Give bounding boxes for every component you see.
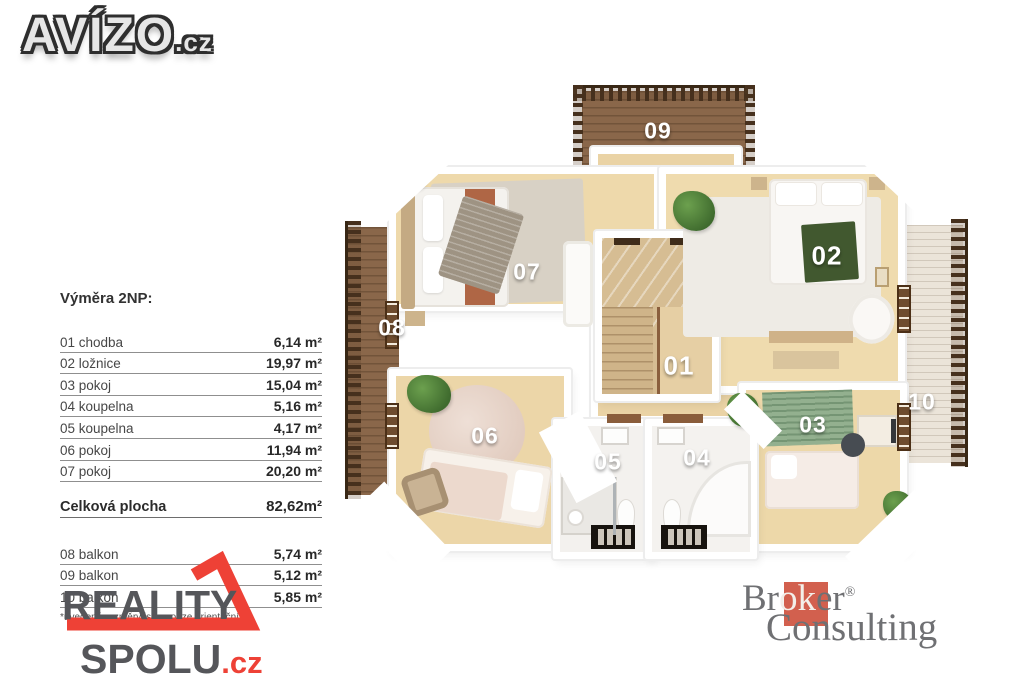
legend-total-row: Celková plocha82,62m²	[60, 494, 322, 518]
total-value: 82,62m²	[266, 498, 322, 515]
row-value: 11,94 m²	[267, 442, 322, 458]
floor-grate	[661, 525, 707, 549]
door-vent	[614, 238, 640, 245]
room-label-09: 09	[644, 118, 672, 145]
monitor	[891, 419, 896, 443]
pillow	[821, 182, 863, 206]
room-label-07: 07	[513, 259, 541, 286]
sink	[657, 427, 685, 445]
room-label-04: 04	[683, 445, 711, 472]
reality-spolu-logo: REALITY SPOLU.cz	[62, 548, 322, 688]
window	[385, 403, 399, 449]
console-table	[769, 331, 853, 343]
shower-glass	[613, 477, 616, 535]
total-label: Celková plocha	[60, 499, 166, 515]
legend-row: 02 ložnice19,97 m²	[60, 353, 322, 375]
room-label-08: 08	[378, 315, 406, 342]
room-label-02: 02	[812, 241, 843, 272]
legend-row: 01 chodba6,14 m²	[60, 331, 322, 353]
pillow	[423, 195, 443, 241]
room-label-03: 03	[799, 412, 827, 439]
door-threshold	[663, 414, 703, 423]
window	[897, 285, 911, 333]
legend-row: 03 pokoj15,04 m²	[60, 374, 322, 396]
couch	[563, 241, 593, 327]
avizo-logo-tld: .cz	[175, 27, 213, 57]
row-label: 02 ložnice	[60, 356, 121, 371]
legend-row: 06 pokoj11,94 m²	[60, 439, 322, 461]
room-label-06: 06	[471, 423, 499, 450]
floor-plan: 01 02 03 04 05 06 07 08 09 10	[345, 85, 970, 575]
avizo-logo: AVÍZO.cz	[22, 12, 213, 60]
pillow	[771, 455, 797, 479]
reality-spolu-word: SPOLU	[80, 636, 221, 682]
reality-spolu-tld: .cz	[221, 645, 262, 680]
row-label: 03 pokoj	[60, 378, 111, 393]
legend-title: Výměra 2NP:	[60, 290, 322, 307]
door-threshold	[607, 414, 641, 423]
legend-row: 07 pokoj20,20 m²	[60, 461, 322, 483]
stool	[567, 509, 584, 526]
room-label-01: 01	[664, 351, 695, 382]
row-label: 06 pokoj	[60, 443, 111, 458]
desk	[773, 351, 839, 369]
row-value: 6,14 m²	[274, 334, 322, 350]
legend-row: 04 koupelna5,16 m²	[60, 396, 322, 418]
row-value: 4,17 m²	[274, 420, 322, 436]
row-label: 05 koupelna	[60, 421, 134, 436]
stair-flight	[602, 307, 653, 394]
nightstand	[751, 177, 767, 190]
broker-line2: Consulting	[766, 608, 937, 647]
room-label-10: 10	[908, 389, 936, 416]
row-label: 04 koupelna	[60, 399, 134, 414]
sink	[601, 427, 629, 445]
balcony-09-railing	[573, 85, 755, 101]
registered-mark: ®	[845, 585, 856, 600]
reality-spolu-line1: REALITY	[62, 582, 237, 629]
row-value: 20,20 m²	[266, 463, 322, 479]
row-value: 19,97 m²	[266, 355, 322, 371]
legend-row: 05 koupelna4,17 m²	[60, 417, 322, 439]
row-label: 01 chodba	[60, 335, 123, 350]
pillow	[775, 182, 817, 206]
nightstand	[405, 311, 425, 326]
row-label: 07 pokoj	[60, 464, 111, 479]
balcony-08-railing	[345, 221, 361, 499]
desk-chair	[841, 433, 865, 457]
balcony-09-railing-left	[573, 85, 583, 169]
balcony-10-railing	[951, 219, 968, 467]
avizo-logo-text: AVÍZO	[22, 9, 175, 62]
balcony-09-railing-right	[745, 85, 755, 169]
reality-spolu-line2: SPOLU.cz	[80, 636, 263, 683]
picture-frame	[875, 267, 889, 287]
row-value: 5,16 m²	[274, 398, 322, 414]
row-value: 15,04 m²	[266, 377, 322, 393]
broker-consulting-logo: Broker® Consulting	[742, 580, 972, 670]
room-label-05: 05	[594, 449, 622, 476]
